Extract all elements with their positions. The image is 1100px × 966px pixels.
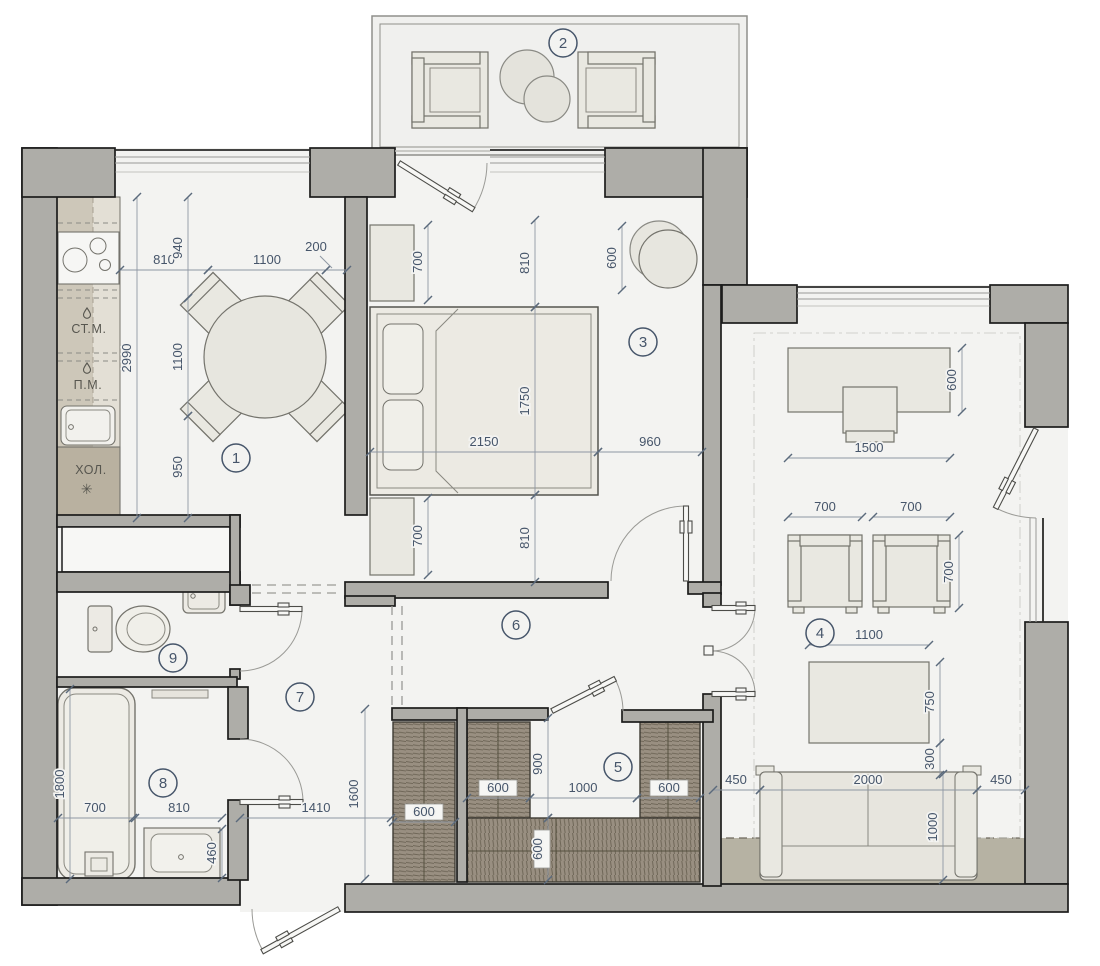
dimension-label-l_2000: 2000 [854,772,883,787]
coffee-table [809,662,929,743]
closet-wardrobe-left [467,722,530,818]
dimension-label-l_1100: 1100 [855,627,883,642]
fridge: ХОЛ. ✳ [57,447,120,515]
washing-machine-label: СТ.М. [71,322,106,336]
room-label-7: 7 [286,683,314,711]
room-label-8: 8 [149,769,177,797]
balcony-table-small [524,76,570,122]
dimension-label-bath_700: 700 [84,800,106,815]
dimension-label-w_600_a: 600 [413,804,435,819]
room-label-1: 1 [222,444,250,472]
dimension-label-w_1000: 1000 [569,780,598,795]
dimension-label-l_1000_sofa: 1000 [925,813,940,842]
svg-text:2: 2 [559,35,567,52]
dining-table-set [180,272,349,441]
room-label-5: 5 [604,753,632,781]
svg-text:8: 8 [159,775,167,792]
room-label-6: 6 [502,611,530,639]
hall-wardrobe [393,722,455,882]
pillow [383,400,423,470]
kitchen-cabinets: СТ.М. П.М. ХОЛ. ✳ [57,197,120,515]
closet-wardrobe-bottom [467,818,700,882]
dimension-label-l_1500: 1500 [855,440,884,455]
dimension-label-l_450_r: 450 [990,772,1012,787]
closet-wardrobe-right [640,722,700,818]
armchair [873,535,950,613]
dimension-label-b_810_t: 810 [517,252,532,274]
dimension-label-l_300: 300 [922,748,937,770]
dimension-label-l_450_l: 450 [725,772,747,787]
dimension-label-k_1100_top: 1100 [253,252,281,267]
dimension-label-l_700_v: 700 [941,561,956,583]
nightstand [370,498,414,575]
dimension-label-w_900: 900 [530,753,545,775]
kitchen-sink [61,406,115,445]
svg-text:4: 4 [816,625,824,642]
bath-shelf [152,690,208,698]
dimension-label-k_200: 200 [305,239,327,254]
svg-text:9: 9 [169,650,177,667]
dimension-label-w_600_d: 600 [530,838,545,860]
svg-text:6: 6 [512,617,520,634]
svg-text:5: 5 [614,759,622,776]
nightstand [370,225,414,301]
desk-chair [843,387,897,442]
dimension-label-h_1600: 1600 [346,780,361,809]
room-label-9: 9 [159,644,187,672]
armchair [788,535,862,613]
dimension-label-b_810_b: 810 [517,527,532,549]
dimension-label-bath_1800: 1800 [52,770,67,799]
balcony-armchair-left [412,52,488,128]
balcony-armchair-right [578,52,655,128]
dimension-label-b_700_b: 700 [410,525,425,547]
svg-text:3: 3 [639,334,647,351]
toilet [88,606,170,652]
niche [62,527,230,572]
dimension-label-w_600_b: 600 [487,780,509,795]
svg-text:1: 1 [232,450,240,467]
dimension-label-k_1100_v: 1100 [170,343,185,371]
dimension-label-bath_810: 810 [168,800,190,815]
bed [370,307,598,495]
fridge-label: ХОЛ. [75,463,107,477]
floor-plan-drawing: СТ.М. П.М. ХОЛ. ✳ [0,0,1100,966]
dimension-label-b_2150: 2150 [470,434,499,449]
dimension-label-b_960: 960 [639,434,661,449]
dishwasher-label: П.М. [74,378,103,392]
snowflake-icon: ✳ [81,481,93,497]
room-label-3: 3 [629,328,657,356]
room-label-2: 2 [549,29,577,57]
dimension-label-l_750: 750 [922,691,937,713]
dimension-label-l_600_desk: 600 [944,369,959,391]
dimension-label-w_600_c: 600 [658,780,680,795]
svg-text:7: 7 [296,689,304,706]
dimension-label-k_940: 940 [170,237,185,259]
dimension-label-k_950: 950 [170,456,185,478]
dimension-label-l_700_b: 700 [900,499,922,514]
dimension-label-l_700_a: 700 [814,499,836,514]
dimension-label-b_1750: 1750 [517,387,532,416]
dimension-label-b_600_pouf: 600 [604,247,619,269]
dining-table [204,296,326,418]
room-label-4: 4 [806,619,834,647]
dimension-label-h_1410: 1410 [302,800,331,815]
pillow [383,324,423,394]
stove [58,232,119,284]
dimension-label-k_2990: 2990 [119,344,134,373]
dimension-label-bath_460: 460 [204,842,219,864]
dimension-label-b_700_t: 700 [410,251,425,273]
floor-plan-page: СТ.М. П.М. ХОЛ. ✳ [0,0,1100,966]
